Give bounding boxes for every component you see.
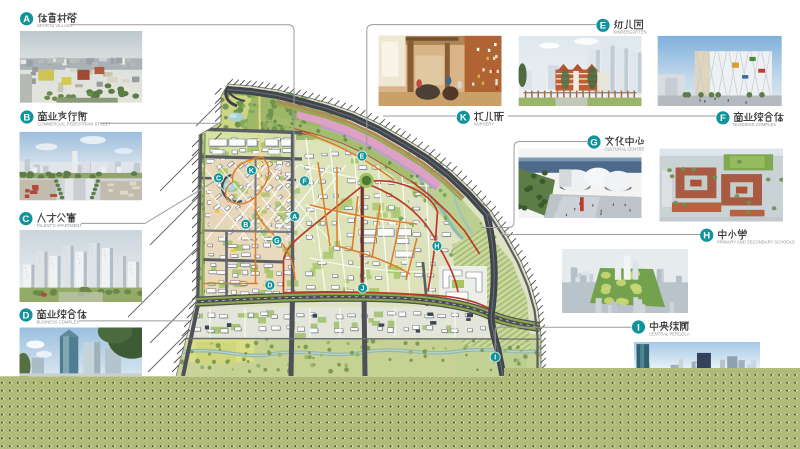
svg-text:K: K [249,168,254,175]
svg-text:F: F [720,113,726,124]
svg-text:A: A [23,14,30,25]
svg-text:BUSINESS COMPLEX: BUSINESS COMPLEX [733,122,776,127]
svg-text:SPORTS VILLAGE: SPORTS VILLAGE [37,23,73,28]
svg-text:G: G [274,238,280,245]
svg-text:PRIMARY AND SECONDARY SCHOOLS: PRIMARY AND SECONDARY SCHOOLS [717,240,795,245]
svg-text:H: H [703,231,710,242]
svg-text:D: D [267,283,272,290]
svg-text:K: K [460,113,467,124]
svg-text:E: E [360,154,365,161]
svg-text:F: F [302,179,307,186]
svg-text:CULTURAL CENTRE: CULTURAL CENTRE [605,146,645,151]
svg-text:I: I [494,355,496,362]
svg-text:E: E [600,21,607,32]
svg-text:J: J [361,286,365,293]
svg-text:COMMERCIAL PEDESTRIAN STREET: COMMERCIAL PEDESTRIAN STREET [37,121,111,126]
svg-text:TALENT'S APARTMENT: TALENT'S APARTMENT [36,223,82,228]
svg-text:H: H [434,244,439,251]
svg-text:NURSERY: NURSERY [474,122,495,127]
svg-text:A: A [292,214,297,221]
svg-text:KINDERGARTEN: KINDERGARTEN [614,30,647,35]
svg-text:B: B [243,222,248,229]
svg-text:D: D [23,310,30,321]
svg-text:C: C [216,176,221,183]
svg-text:C: C [22,214,29,225]
svg-text:I: I [637,322,640,333]
svg-text:B: B [23,112,30,123]
svg-text:BUSINESS COMPLEX: BUSINESS COMPLEX [37,319,80,324]
svg-text:CENTRAL PERGOLA: CENTRAL PERGOLA [649,331,690,336]
svg-text:G: G [590,137,597,148]
